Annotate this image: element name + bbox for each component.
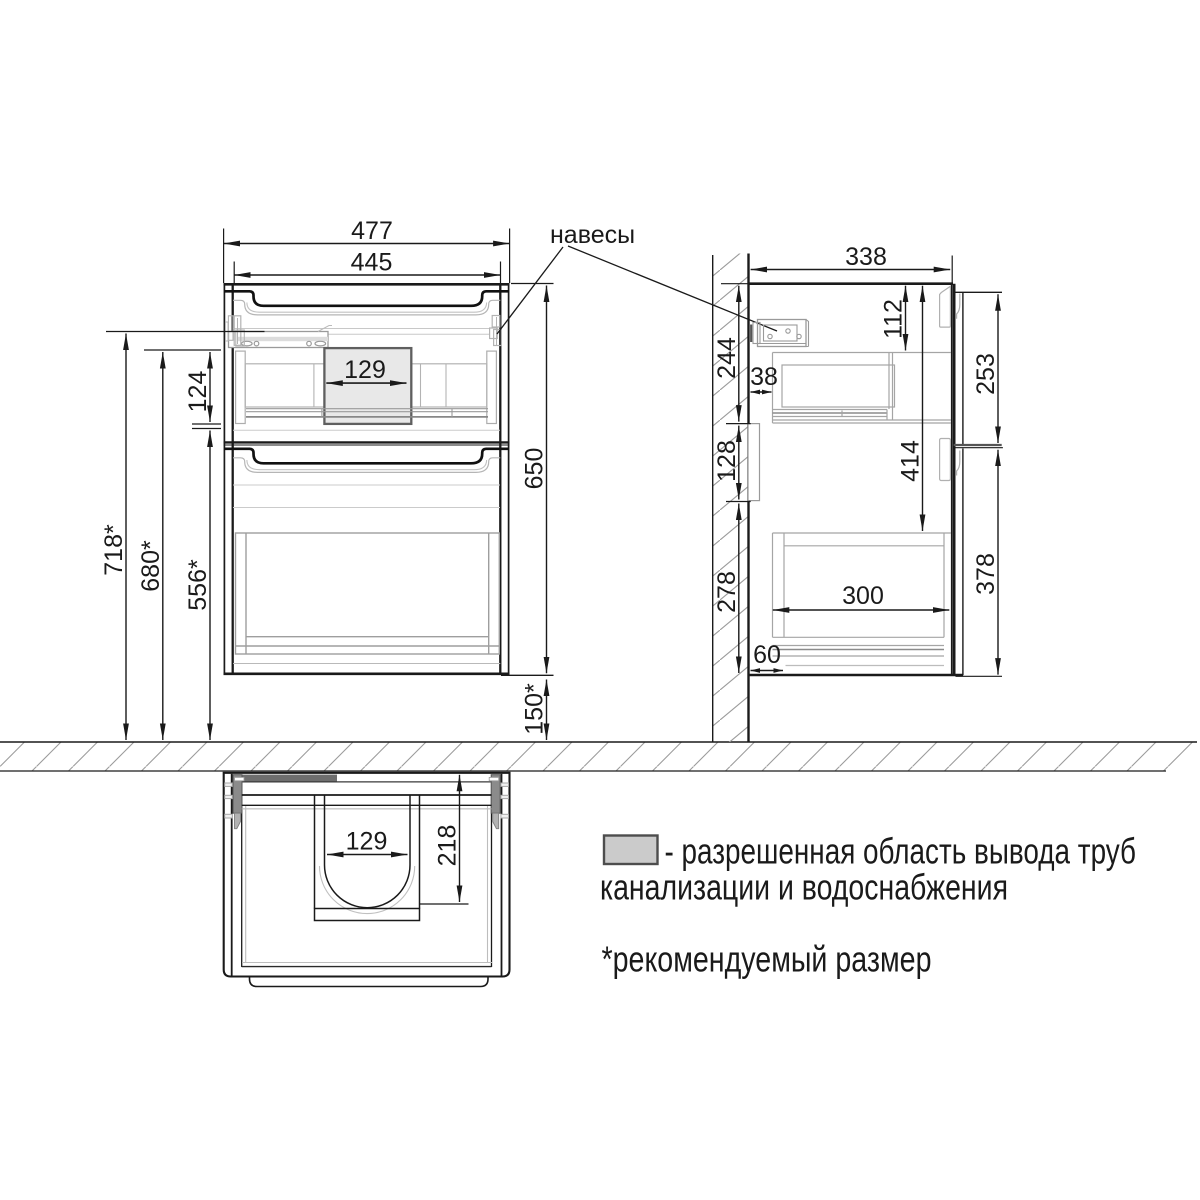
- svg-text:навесы: навесы: [550, 221, 635, 249]
- svg-text:- разрешенная область вывода т: - разрешенная область вывода труб: [665, 831, 1137, 872]
- svg-text:680*: 680*: [137, 540, 165, 592]
- svg-text:150*: 150*: [521, 683, 549, 735]
- svg-text:338: 338: [845, 243, 887, 271]
- svg-text:445: 445: [351, 249, 393, 277]
- svg-text:*рекомендуемый размер: *рекомендуемый размер: [602, 939, 932, 980]
- svg-text:124: 124: [184, 371, 212, 413]
- svg-text:канализации и водоснабжения: канализации и водоснабжения: [600, 867, 1008, 908]
- svg-text:218: 218: [434, 825, 462, 867]
- svg-text:129: 129: [346, 828, 388, 856]
- svg-text:477: 477: [351, 217, 393, 245]
- svg-text:650: 650: [521, 448, 549, 490]
- svg-text:60: 60: [753, 641, 781, 669]
- svg-text:378: 378: [972, 553, 1000, 595]
- svg-text:129: 129: [344, 356, 386, 384]
- svg-text:253: 253: [972, 353, 1000, 395]
- svg-text:38: 38: [750, 363, 778, 391]
- svg-text:278: 278: [713, 571, 741, 613]
- svg-text:718*: 718*: [100, 524, 128, 576]
- svg-text:414: 414: [897, 440, 925, 482]
- svg-text:300: 300: [842, 582, 884, 610]
- svg-text:244: 244: [713, 337, 741, 379]
- svg-text:128: 128: [713, 440, 741, 482]
- svg-text:112: 112: [880, 299, 908, 339]
- svg-text:556*: 556*: [184, 559, 212, 611]
